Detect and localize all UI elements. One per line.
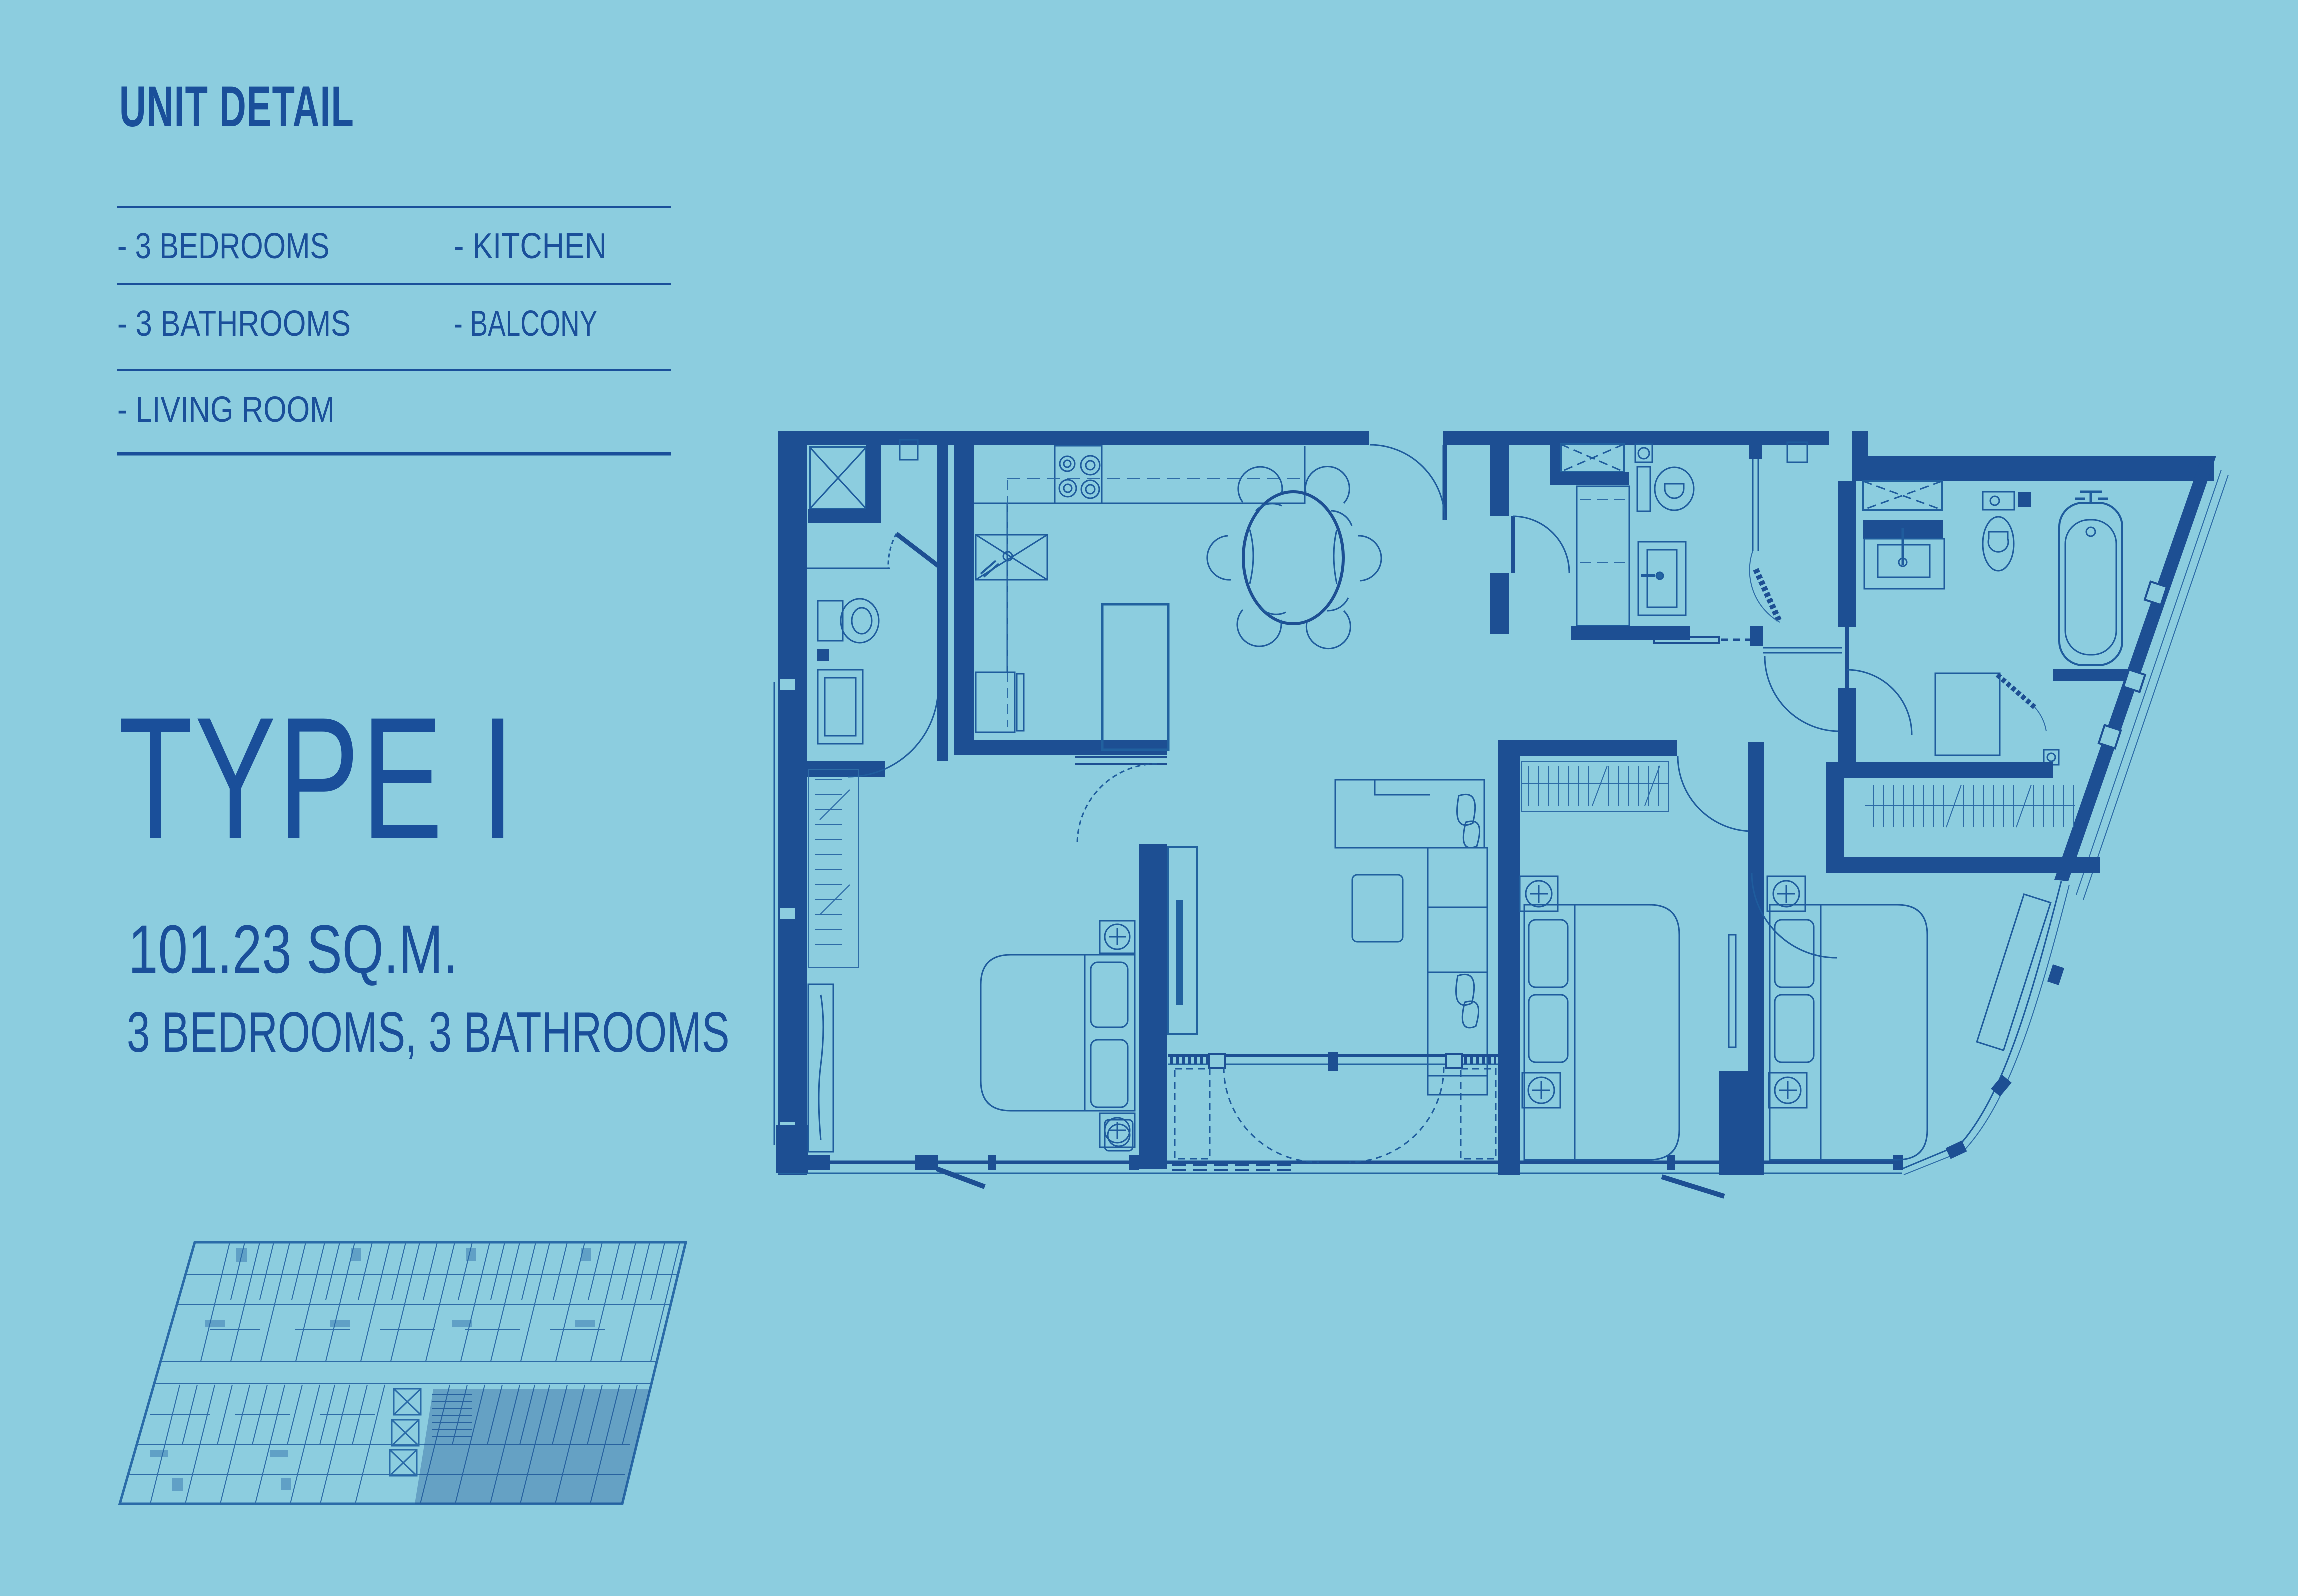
svg-text:- 3 BEDROOMS: - 3 BEDROOMS bbox=[117, 226, 329, 266]
svg-text:3 BEDROOMS, 3 BATHROOMS: 3 BEDROOMS, 3 BATHROOMS bbox=[127, 1001, 730, 1064]
svg-text:TYPE I: TYPE I bbox=[118, 681, 517, 875]
svg-text:- 3 BATHROOMS: - 3 BATHROOMS bbox=[117, 304, 351, 344]
svg-text:- BALCONY: - BALCONY bbox=[454, 304, 597, 344]
svg-text:- KITCHEN: - KITCHEN bbox=[454, 226, 607, 266]
svg-text:101.23 SQ.M.: 101.23 SQ.M. bbox=[128, 911, 458, 988]
svg-text:- LIVING ROOM: - LIVING ROOM bbox=[117, 390, 335, 430]
svg-text:UNIT DETAIL: UNIT DETAIL bbox=[119, 74, 354, 139]
